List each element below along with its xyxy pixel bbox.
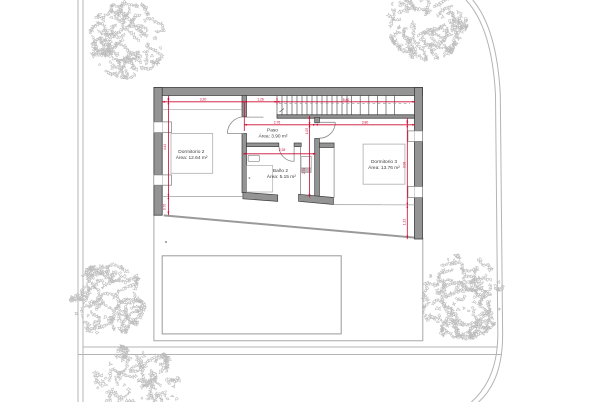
svg-text:Área: 3.90 m²: Área: 3.90 m² (258, 132, 287, 139)
svg-text:Paso: Paso (267, 127, 278, 133)
svg-text:3.80: 3.80 (362, 121, 369, 125)
svg-text:1.26: 1.26 (257, 97, 264, 101)
svg-text:3.20: 3.20 (200, 97, 207, 101)
svg-text:Baño 2: Baño 2 (273, 168, 289, 174)
svg-text:Área: 12.64 m²: Área: 12.64 m² (176, 154, 208, 161)
svg-text:2.28: 2.28 (279, 148, 286, 152)
svg-text:Dormitorio 2: Dormitorio 2 (178, 149, 204, 155)
svg-text:Área: 13.76 m²: Área: 13.76 m² (368, 164, 400, 171)
svg-text:5.40: 5.40 (343, 98, 350, 102)
svg-text:Área: 5.15 m²: Área: 5.15 m² (267, 173, 296, 180)
svg-text:3.08: 3.08 (403, 162, 407, 168)
svg-text:Dormitorio 3: Dormitorio 3 (371, 159, 397, 165)
svg-text:2.76: 2.76 (274, 121, 281, 125)
svg-text:2.74: 2.74 (302, 168, 306, 174)
svg-text:4.44: 4.44 (163, 144, 167, 150)
svg-text:0.70: 0.70 (163, 204, 167, 210)
svg-text:1.32: 1.32 (403, 219, 407, 225)
svg-text:1.05: 1.05 (305, 128, 309, 134)
